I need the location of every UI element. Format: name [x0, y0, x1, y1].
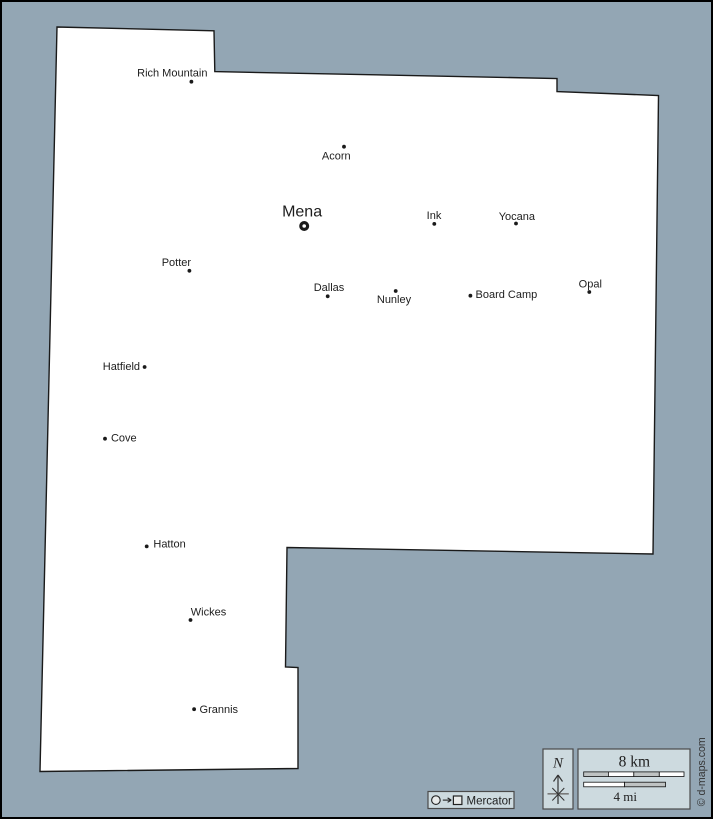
- svg-text:4 mi: 4 mi: [613, 789, 637, 804]
- svg-text:Board Camp: Board Camp: [476, 289, 538, 301]
- svg-text:Yocana: Yocana: [499, 211, 536, 223]
- svg-text:Grannis: Grannis: [200, 704, 239, 716]
- svg-text:Potter: Potter: [162, 257, 192, 269]
- svg-text:Hatton: Hatton: [153, 539, 185, 551]
- svg-text:Hatfield: Hatfield: [103, 361, 140, 373]
- svg-text:8 km: 8 km: [619, 754, 650, 771]
- svg-text:N: N: [552, 756, 564, 772]
- svg-text:Mercator: Mercator: [467, 795, 513, 807]
- svg-text:Cove: Cove: [111, 433, 137, 445]
- svg-text:Opal: Opal: [579, 278, 602, 290]
- svg-text:Rich Mountain: Rich Mountain: [137, 67, 207, 79]
- svg-text:Dallas: Dallas: [314, 282, 345, 294]
- svg-text:Mena: Mena: [282, 203, 322, 220]
- svg-text:Ink: Ink: [427, 210, 442, 222]
- svg-text:Wickes: Wickes: [191, 607, 227, 619]
- svg-text:Nunley: Nunley: [377, 294, 412, 306]
- svg-text:© d-maps.com: © d-maps.com: [696, 737, 708, 806]
- svg-text:Acorn: Acorn: [322, 150, 351, 162]
